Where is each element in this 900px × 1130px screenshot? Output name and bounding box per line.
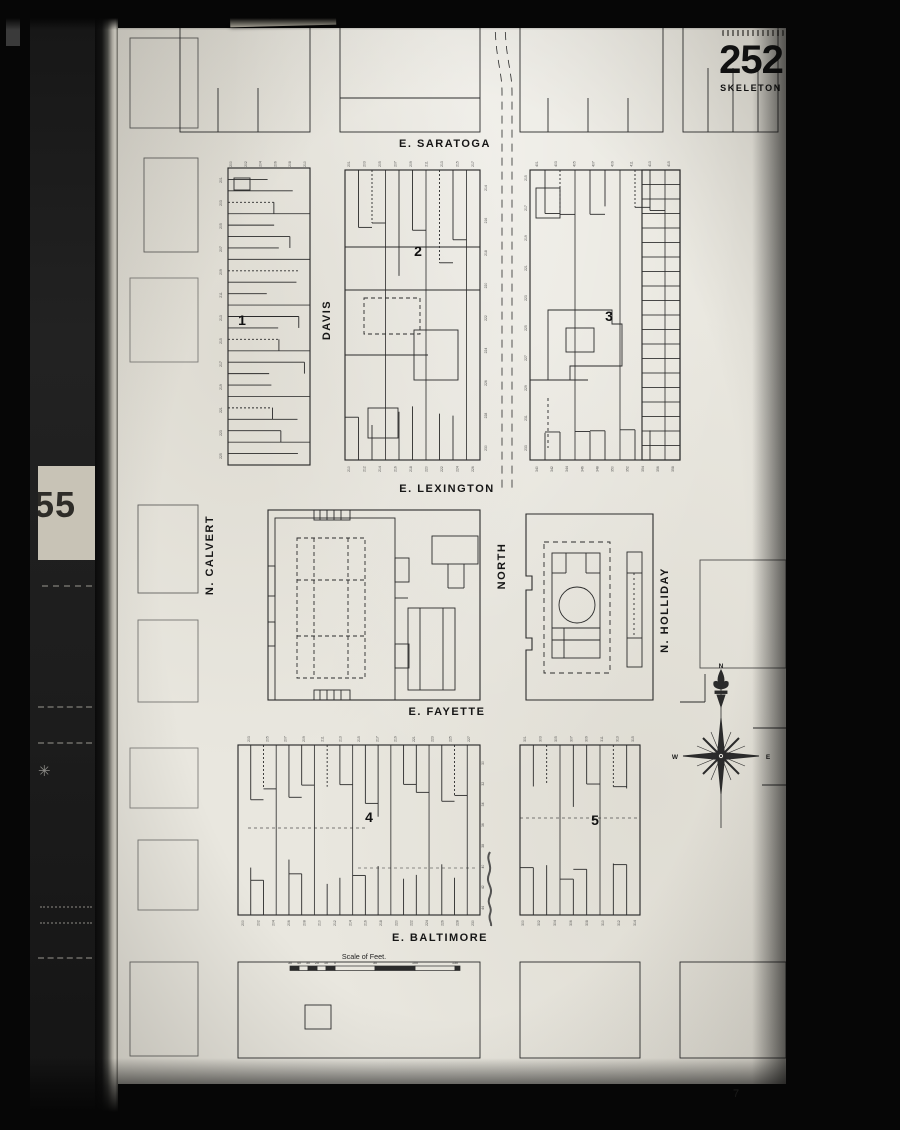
svg-text:405: 405	[573, 161, 577, 167]
block-number: 1	[238, 312, 246, 328]
svg-text:305: 305	[554, 736, 558, 742]
svg-text:206: 206	[287, 920, 291, 926]
film-smudge-text	[722, 30, 784, 36]
svg-text:307: 307	[569, 736, 573, 742]
film-stray-line	[38, 742, 92, 744]
street-label: NORTH	[496, 543, 508, 590]
svg-text:226: 226	[440, 920, 444, 926]
svg-text:201: 201	[219, 177, 223, 183]
svg-text:310: 310	[601, 920, 605, 926]
svg-text:223: 223	[219, 430, 223, 436]
svg-text:201: 201	[347, 161, 351, 167]
svg-text:230: 230	[484, 445, 488, 451]
svg-text:40: 40	[481, 865, 485, 869]
svg-text:225: 225	[524, 325, 528, 331]
svg-text:36: 36	[481, 823, 485, 827]
svg-text:411: 411	[629, 161, 633, 167]
svg-text:205: 205	[265, 736, 269, 742]
svg-text:342: 342	[550, 466, 554, 472]
svg-text:219: 219	[524, 235, 528, 241]
street-label: N. CALVERT	[204, 515, 216, 595]
svg-text:217: 217	[524, 205, 528, 211]
svg-text:233: 233	[524, 445, 528, 451]
street-label: E. BALTIMORE	[392, 932, 488, 944]
svg-text:38: 38	[481, 844, 485, 848]
svg-text:301: 301	[523, 736, 527, 742]
svg-text:208: 208	[302, 920, 306, 926]
svg-text:211: 211	[425, 161, 429, 167]
svg-text:204: 204	[272, 920, 276, 926]
svg-text:210: 210	[347, 466, 351, 472]
svg-text:348: 348	[595, 466, 599, 472]
svg-text:224: 224	[425, 920, 429, 926]
street-label: E. SARATOGA	[399, 138, 491, 150]
svg-text:218: 218	[484, 250, 488, 256]
svg-text:218: 218	[409, 466, 413, 472]
svg-text:206: 206	[273, 161, 277, 167]
adjacent-sheet-number-patch: 55	[38, 466, 95, 560]
svg-text:202: 202	[256, 920, 260, 926]
svg-text:209: 209	[409, 161, 413, 167]
svg-text:213: 213	[440, 161, 444, 167]
svg-text:220: 220	[394, 920, 398, 926]
sheet-number: 252	[718, 38, 784, 82]
svg-text:32: 32	[481, 782, 485, 786]
scale-tick-label: 0	[334, 961, 336, 965]
film-stray-line	[38, 957, 92, 959]
paper-tag-label: Double p. per exp.	[237, 11, 318, 21]
svg-text:212: 212	[333, 920, 337, 926]
street-label: N. HOLLIDAY	[659, 567, 671, 653]
svg-text:315: 315	[631, 736, 635, 742]
svg-text:222: 222	[440, 466, 444, 472]
film-fade-top	[0, 0, 900, 30]
svg-text:212: 212	[363, 466, 367, 472]
svg-text:304: 304	[553, 920, 557, 926]
svg-text:34: 34	[481, 802, 485, 806]
block-number: 2	[414, 243, 422, 259]
svg-text:209: 209	[219, 269, 223, 275]
map-labels: E. SARATOGAE. LEXINGTONE. FAYETTEE. BALT…	[204, 138, 771, 971]
svg-text:208: 208	[288, 161, 292, 167]
sheet-type-label: SKELETON	[718, 83, 784, 93]
scale-tick-label: 30	[306, 961, 310, 965]
block-parcels	[228, 168, 680, 915]
svg-text:215: 215	[357, 736, 361, 742]
svg-text:215: 215	[456, 161, 460, 167]
svg-text:220: 220	[425, 466, 429, 472]
street-label: E. FAYETTE	[409, 706, 486, 718]
compass-direction-label: E	[766, 754, 771, 761]
block-number: 4	[365, 809, 373, 825]
svg-text:415: 415	[667, 161, 671, 167]
film-notch	[6, 16, 20, 46]
svg-text:217: 217	[375, 736, 379, 742]
svg-text:228: 228	[484, 413, 488, 419]
svg-text:30: 30	[481, 761, 485, 765]
svg-text:403: 403	[554, 161, 558, 167]
scale-tick-label: 10	[324, 961, 328, 965]
svg-text:215: 215	[524, 175, 528, 181]
svg-text:227: 227	[524, 355, 528, 361]
svg-text:309: 309	[585, 736, 589, 742]
svg-text:222: 222	[484, 315, 488, 321]
street-label: DAVIS	[321, 300, 333, 340]
svg-text:203: 203	[219, 200, 223, 206]
svg-text:224: 224	[484, 348, 488, 354]
svg-text:217: 217	[219, 361, 223, 367]
svg-text:207: 207	[219, 246, 223, 252]
svg-text:203: 203	[363, 161, 367, 167]
svg-text:352: 352	[626, 466, 630, 472]
svg-text:215: 215	[219, 338, 223, 344]
svg-text:220: 220	[484, 283, 488, 289]
svg-text:213: 213	[339, 736, 343, 742]
svg-text:226: 226	[484, 380, 488, 386]
film-paper-tag: Double p. per exp.	[230, 4, 337, 28]
svg-text:207: 207	[394, 161, 398, 167]
scale-tick-label: 40	[297, 961, 301, 965]
svg-text:205: 205	[378, 161, 382, 167]
svg-text:210: 210	[318, 920, 322, 926]
svg-text:300: 300	[521, 920, 525, 926]
svg-text:216: 216	[394, 466, 398, 472]
svg-text:200: 200	[241, 920, 245, 926]
svg-text:219: 219	[219, 384, 223, 390]
svg-text:219: 219	[394, 736, 398, 742]
svg-text:218: 218	[379, 920, 383, 926]
svg-text:344: 344	[565, 466, 569, 472]
scale-tick-label: 150	[452, 961, 458, 965]
svg-text:214: 214	[348, 920, 352, 926]
svg-text:213: 213	[219, 315, 223, 321]
svg-text:221: 221	[219, 407, 223, 413]
svg-text:311: 311	[600, 736, 604, 742]
svg-text:209: 209	[302, 736, 306, 742]
film-strip-adjacent-sheet	[30, 0, 95, 1130]
svg-text:214: 214	[484, 185, 488, 191]
svg-text:216: 216	[484, 218, 488, 224]
svg-text:202: 202	[244, 161, 248, 167]
svg-text:42: 42	[481, 885, 485, 889]
scale-tick-label: 50	[373, 961, 377, 965]
svg-text:217: 217	[471, 161, 475, 167]
map-sheet-page: 2012032052072092112132152172192212232252…	[118, 28, 786, 1084]
checkbox-mark-icon	[321, 11, 328, 18]
svg-text:211: 211	[219, 292, 223, 298]
svg-text:210: 210	[303, 161, 307, 167]
svg-text:221: 221	[412, 736, 416, 742]
svg-text:207: 207	[284, 736, 288, 742]
svg-text:350: 350	[611, 466, 615, 472]
svg-text:221: 221	[524, 265, 528, 271]
film-stray-line	[40, 906, 92, 908]
svg-text:409: 409	[610, 161, 614, 167]
svg-text:205: 205	[219, 223, 223, 229]
svg-text:302: 302	[537, 920, 541, 926]
film-stray-line	[38, 706, 92, 708]
film-frame-number: 7	[733, 1088, 739, 1100]
film-edge	[95, 0, 118, 1130]
film-stray-line	[42, 585, 92, 587]
svg-text:225: 225	[219, 453, 223, 459]
svg-text:231: 231	[524, 415, 528, 421]
svg-text:214: 214	[378, 466, 382, 472]
svg-text:413: 413	[648, 161, 652, 167]
svg-text:314: 314	[633, 920, 637, 926]
svg-text:356: 356	[656, 466, 660, 472]
svg-text:224: 224	[456, 466, 460, 472]
svg-text:313: 313	[616, 736, 620, 742]
sheet-id: 252 SKELETON	[718, 38, 784, 93]
svg-text:203: 203	[247, 736, 251, 742]
svg-text:229: 229	[524, 385, 528, 391]
street-label: E. LEXINGTON	[399, 483, 494, 495]
svg-text:228: 228	[456, 920, 460, 926]
svg-text:223: 223	[524, 295, 528, 301]
scale-label: Scale of Feet.	[342, 952, 386, 961]
svg-text:226: 226	[471, 466, 475, 472]
lot-numbers: 2012032052072092112132152172192212232252…	[219, 161, 675, 926]
svg-text:200: 200	[229, 161, 233, 167]
svg-text:308: 308	[585, 920, 589, 926]
block-number: 3	[605, 308, 613, 324]
adjacent-sheet-number: 55	[38, 484, 76, 526]
block-number: 5	[591, 812, 599, 828]
svg-text:401: 401	[535, 161, 539, 167]
scanned-map-frame: { "film": { "tag_label": "Double p. per …	[0, 0, 900, 1130]
svg-text:222: 222	[410, 920, 414, 926]
compass-direction-label: W	[672, 754, 679, 761]
svg-text:223: 223	[430, 736, 434, 742]
scale-tick-label: 100	[412, 961, 418, 965]
svg-text:312: 312	[617, 920, 621, 926]
compass-direction-label: N	[719, 663, 724, 670]
map-canvas: 2012032052072092112132152172192212232252…	[118, 28, 786, 1084]
svg-text:358: 358	[671, 466, 675, 472]
svg-text:211: 211	[320, 736, 324, 742]
svg-text:303: 303	[538, 736, 542, 742]
svg-text:354: 354	[641, 466, 645, 472]
svg-text:216: 216	[364, 920, 368, 926]
scale-tick-label: 20	[315, 961, 319, 965]
svg-text:340: 340	[535, 466, 539, 472]
film-stray-line	[40, 922, 92, 924]
svg-text:230: 230	[471, 920, 475, 926]
svg-text:306: 306	[569, 920, 573, 926]
film-scratch-icon: ✳	[38, 762, 51, 780]
svg-text:227: 227	[467, 736, 471, 742]
svg-text:407: 407	[592, 161, 596, 167]
svg-text:346: 346	[580, 466, 584, 472]
scale-tick-label: 50	[288, 961, 292, 965]
svg-text:225: 225	[449, 736, 453, 742]
svg-text:44: 44	[481, 906, 485, 910]
svg-text:204: 204	[259, 161, 263, 167]
